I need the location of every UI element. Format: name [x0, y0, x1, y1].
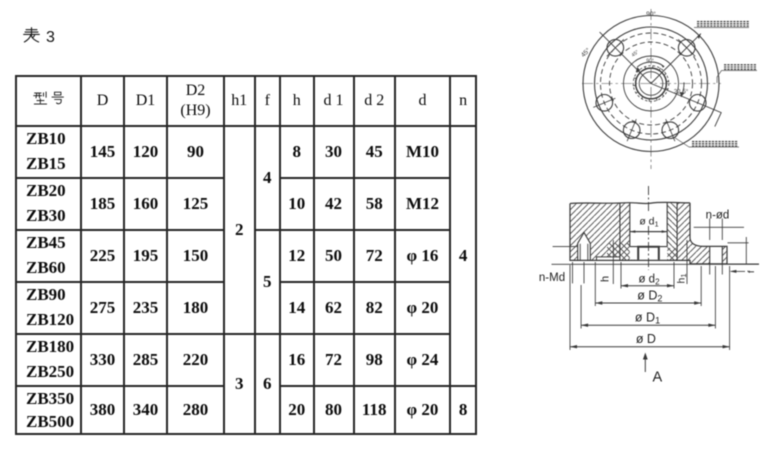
svg-text:ø D2: ø D2 — [637, 289, 662, 304]
svg-text:A: A — [653, 370, 663, 386]
svg-text:90°: 90° — [646, 59, 654, 65]
svg-text:45°: 45° — [579, 46, 592, 59]
svg-text:ø d1: ø d1 — [639, 216, 658, 229]
svg-text:ø D1: ø D1 — [635, 311, 660, 326]
svg-text:ø D: ø D — [636, 332, 656, 346]
svg-text:h1: h1 — [676, 273, 689, 283]
svg-text:f: f — [746, 270, 756, 273]
svg-text:22.5°: 22.5° — [674, 89, 689, 96]
svg-text:n-Md: n-Md — [539, 272, 565, 284]
svg-text:45°: 45° — [631, 49, 641, 58]
svg-text:ø d2: ø d2 — [638, 274, 660, 287]
svg-text:h: h — [600, 276, 612, 282]
svg-text:n-ød: n-ød — [706, 210, 730, 222]
svg-text:90°: 90° — [646, 10, 656, 18]
